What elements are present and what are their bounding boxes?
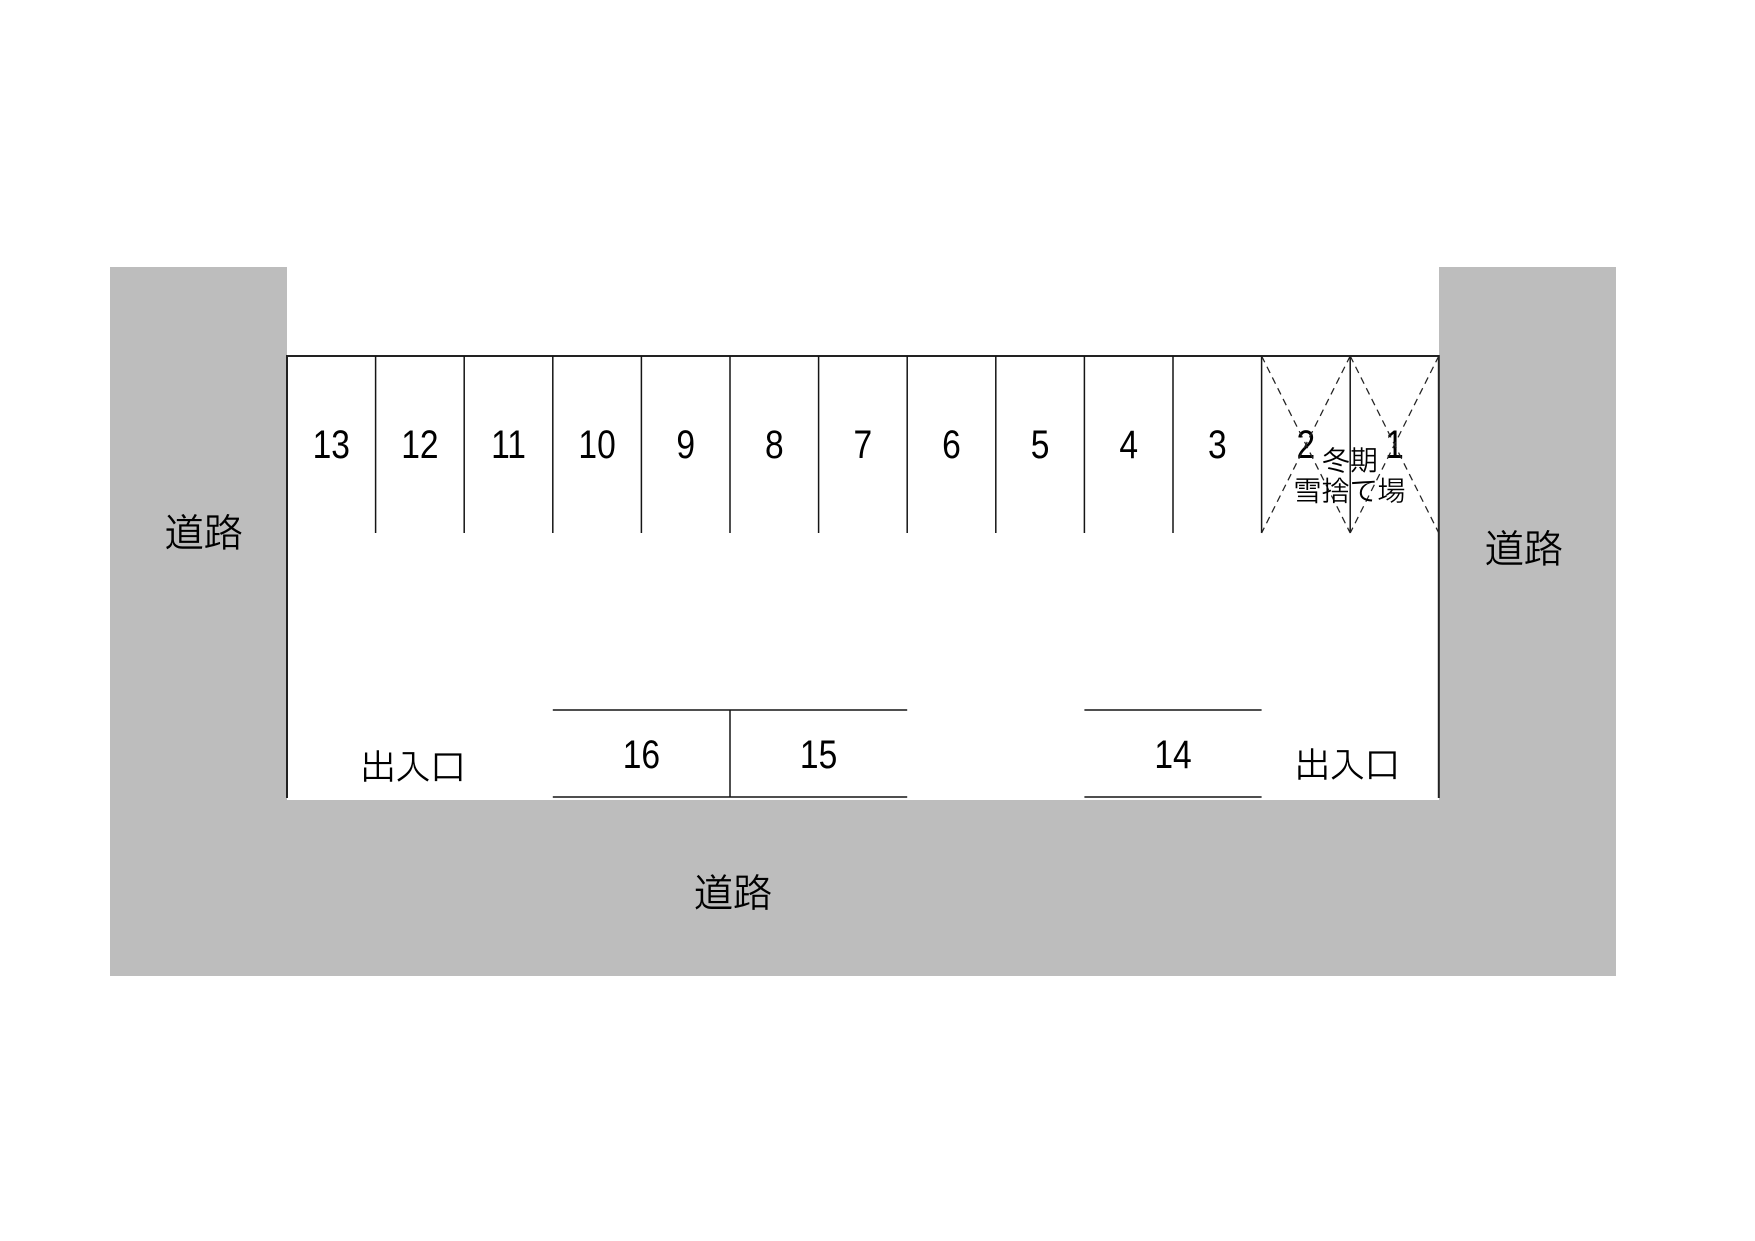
svg-text:7: 7 bbox=[854, 422, 873, 466]
svg-text:5: 5 bbox=[1031, 422, 1050, 466]
svg-text:15: 15 bbox=[800, 732, 837, 776]
svg-text:10: 10 bbox=[578, 422, 615, 466]
svg-text:16: 16 bbox=[623, 732, 660, 776]
svg-text:8: 8 bbox=[765, 422, 784, 466]
svg-text:9: 9 bbox=[676, 422, 695, 466]
svg-text:13: 13 bbox=[313, 422, 350, 466]
svg-text:4: 4 bbox=[1119, 422, 1138, 466]
svg-text:11: 11 bbox=[491, 422, 526, 466]
svg-text:6: 6 bbox=[942, 422, 961, 466]
svg-text:12: 12 bbox=[401, 422, 438, 466]
svg-text:3: 3 bbox=[1208, 422, 1227, 466]
svg-text:14: 14 bbox=[1154, 732, 1191, 776]
